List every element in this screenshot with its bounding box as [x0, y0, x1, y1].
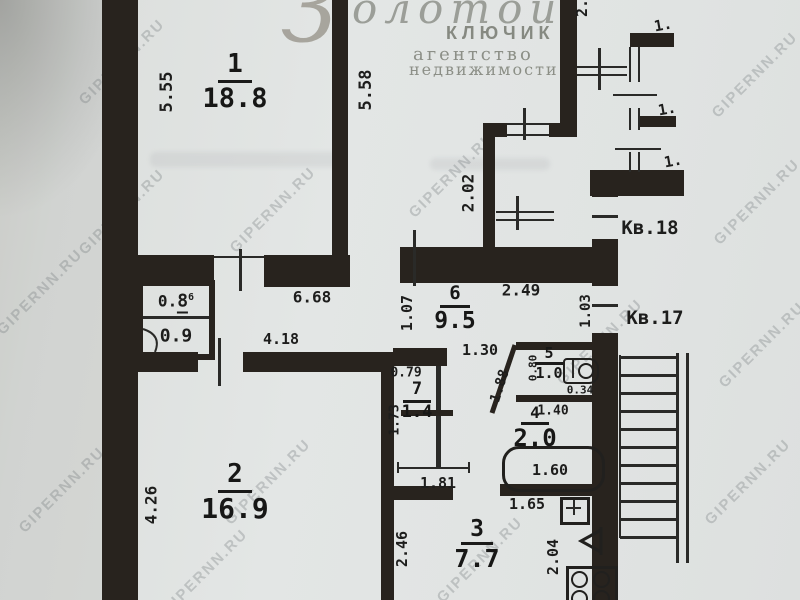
porch-thin-wall — [638, 152, 640, 172]
dim-0.80: 0.80 — [527, 355, 540, 382]
dim-2.46: 2.46 — [393, 531, 411, 567]
stove-burner — [571, 571, 588, 588]
dimension-tick — [516, 196, 519, 230]
stair-stringer — [676, 353, 679, 563]
kitchen-sink-icon — [560, 497, 590, 525]
dim-2.02: 2.02 — [459, 174, 478, 213]
dimension-tick — [523, 108, 526, 140]
closet-divider — [143, 316, 209, 319]
stair-tread — [620, 482, 678, 485]
toilet-tank-line — [572, 360, 574, 378]
paper-smudge — [150, 152, 340, 167]
porch-opening-line — [577, 74, 627, 76]
closet-top-prefix: 0. — [158, 292, 177, 311]
entrance-door-line — [496, 211, 554, 213]
watermark: GIPERNN.RU — [227, 164, 320, 257]
porch-thin-wall — [629, 152, 631, 172]
dimension-tick — [468, 462, 470, 473]
room6-label: 6 9.5 — [428, 283, 482, 334]
dim-1.07: 1.07 — [398, 295, 416, 331]
dim-0.79: 0.79 — [390, 366, 421, 381]
watermark: GIPERNN.RU — [711, 156, 800, 249]
porch-thin-wall — [629, 108, 631, 130]
room6-area: 9.5 — [434, 308, 476, 334]
floor-plan: GIPERNN.RU GIPERNN.RU GIPERNN.RU GIPERNN… — [0, 0, 800, 600]
wall-room7-top — [393, 348, 447, 366]
wall-entrance — [590, 170, 684, 196]
label-kv17: Кв.17 — [626, 307, 683, 329]
dimension-tick — [613, 94, 657, 96]
dim-2-cut: 2. — [573, 0, 591, 17]
stair-tread — [620, 410, 678, 413]
dim-1c: 1. — [663, 151, 684, 172]
stove-burner — [593, 571, 610, 588]
dim-1a: 1. — [653, 15, 674, 36]
dim-5.58: 5.58 — [356, 70, 376, 111]
room5-number: 5 — [535, 345, 562, 365]
dim-1.65: 1.65 — [509, 495, 545, 513]
watermark: GIPERNN.RU — [709, 29, 800, 122]
watermark: GIPERNN.RU — [159, 526, 252, 600]
dim-5.55: 5.55 — [157, 72, 177, 113]
stair-tread — [620, 446, 678, 449]
wall-porch-step — [640, 116, 676, 127]
stair-tread — [620, 536, 678, 539]
toilet-bowl-circle — [578, 363, 594, 379]
dim-1.60: 1.60 — [532, 461, 568, 479]
dim-4.26: 4.26 — [142, 486, 161, 525]
wall-window — [483, 123, 507, 137]
wall-exterior-right — [592, 239, 618, 286]
dim-2.49: 2.49 — [502, 281, 541, 300]
room3-area: 7.7 — [454, 545, 499, 574]
room1-label: 1 18.8 — [186, 50, 284, 114]
porch-opening-line — [577, 66, 627, 68]
wall-exterior-left — [102, 0, 138, 600]
room2-label: 2 16.9 — [192, 460, 278, 525]
dimension-tick — [397, 462, 399, 473]
dim-1.88: 1.88 — [487, 367, 513, 404]
porch-thin-wall — [629, 47, 631, 82]
stair-tread — [620, 428, 678, 431]
closet-top-digit: 8 — [177, 291, 188, 314]
dim-1.81: 1.81 — [420, 474, 456, 492]
room7-number: 7 — [403, 380, 431, 403]
wall-porch-step — [630, 33, 674, 47]
dim-0.34: 0.34 — [567, 384, 594, 397]
watermark: GIPERNN.RU — [702, 436, 795, 529]
door-kv17 — [592, 304, 618, 307]
window-line — [507, 123, 549, 125]
entrance-door-line — [496, 219, 554, 221]
stove-burner — [571, 590, 588, 600]
window-line — [507, 134, 549, 136]
wall-middle — [264, 255, 350, 287]
closet-bottom-label: 0.9 — [160, 326, 193, 347]
room5-area: 1.0 — [535, 365, 562, 382]
stair-stringer — [686, 353, 689, 563]
wall-corridor202-left — [483, 137, 495, 247]
dim-6.68: 6.68 — [293, 288, 332, 307]
dim-4.18: 4.18 — [263, 330, 299, 348]
room3-label: 3 7.7 — [443, 516, 511, 574]
dimension-tick — [413, 230, 416, 286]
stair-tread — [620, 374, 678, 377]
dim-1b: 1. — [657, 99, 678, 120]
closet-top-label: 0.86 — [158, 291, 194, 312]
room1-area: 18.8 — [202, 83, 267, 114]
door-kv18 — [592, 215, 618, 218]
logo-line-realty: недвижимости — [409, 60, 559, 79]
porch-thin-wall — [638, 47, 640, 82]
dimension-tick — [615, 148, 661, 150]
room4-area: 2.0 — [513, 425, 556, 453]
stair-tread — [620, 356, 678, 359]
dimension-tick — [218, 338, 221, 386]
wall-room1-right — [332, 0, 348, 257]
stair-tread — [620, 392, 678, 395]
room3-number: 3 — [461, 516, 493, 545]
room6-number: 6 — [440, 283, 469, 308]
room2-number: 2 — [218, 460, 252, 493]
stair-tread — [620, 464, 678, 467]
stair-tread — [620, 518, 678, 521]
logo-subtitle: КЛЮЧИК — [446, 23, 555, 44]
room1-number: 1 — [218, 50, 252, 83]
wall-corridor-bottom — [243, 352, 393, 372]
dimension-line — [398, 467, 470, 469]
stair-tread — [620, 500, 678, 503]
dim-2.04: 2.04 — [544, 539, 562, 575]
dimension-tick — [598, 48, 601, 90]
dim-1.73: 1.73 — [388, 404, 403, 435]
watermark: GIPERNN.RU — [716, 299, 800, 392]
room2-area: 16.9 — [201, 493, 268, 525]
dim-1.30: 1.30 — [462, 341, 498, 359]
dim-1.40: 1.40 — [537, 404, 568, 419]
closet-top-sup: 6 — [188, 292, 194, 303]
dimension-tick — [239, 249, 242, 291]
room7-label: 7 1.4 — [397, 380, 437, 422]
kitchen-sink-plus — [573, 500, 575, 515]
label-kv18: Кв.18 — [621, 217, 678, 239]
room7-area: 1.4 — [402, 403, 433, 423]
wall-middle — [400, 247, 597, 283]
dim-1.03: 1.03 — [578, 294, 594, 328]
wall-window — [549, 123, 577, 137]
wall-vestibule-left — [560, 0, 577, 125]
stove-burner — [593, 590, 610, 600]
logo-script-initial: З — [281, 0, 338, 56]
